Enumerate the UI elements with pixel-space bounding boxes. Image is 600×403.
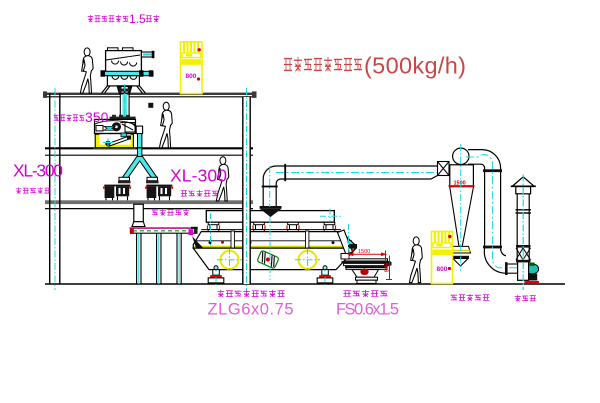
svg-text:350: 350 [85, 109, 109, 125]
svg-text:(500kg/h): (500kg/h) [364, 53, 466, 79]
svg-text:800: 800 [186, 73, 197, 80]
svg-text:ZLG6x0.75: ZLG6x0.75 [208, 301, 294, 319]
svg-text:1.5: 1.5 [129, 12, 146, 26]
svg-text:545: 545 [385, 263, 391, 272]
svg-text:1500: 1500 [454, 180, 466, 186]
svg-text:1500: 1500 [358, 249, 370, 255]
svg-text:800: 800 [437, 266, 448, 273]
svg-text:XL-300: XL-300 [170, 166, 227, 186]
svg-text:FS0.6x1.5: FS0.6x1.5 [336, 301, 399, 319]
svg-text:XL-300: XL-300 [13, 161, 63, 181]
